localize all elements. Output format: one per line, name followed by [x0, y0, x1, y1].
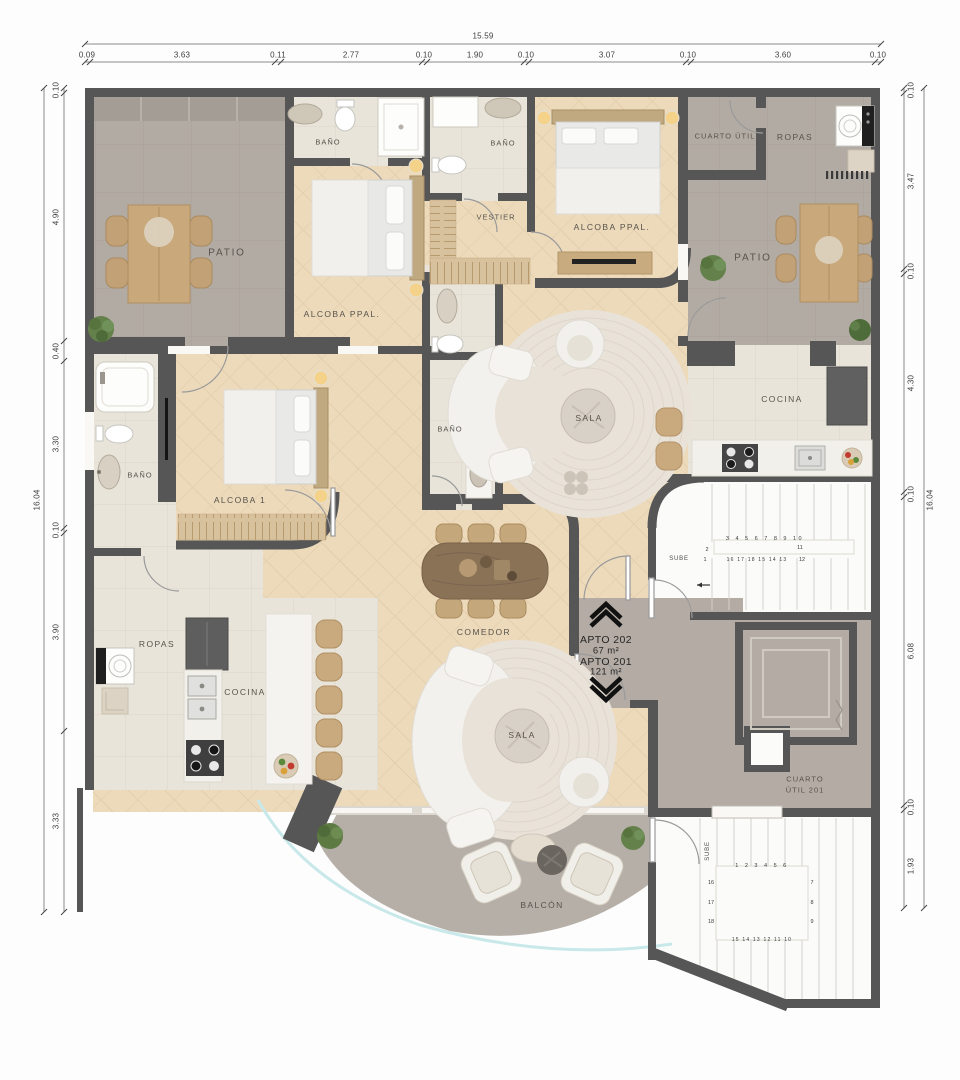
tv-console: [558, 252, 652, 274]
dim-left-seg-2: 0.40: [52, 343, 61, 359]
plant-icon: [849, 319, 871, 341]
stair1-right-bottom: 12: [799, 557, 805, 563]
toilet-icon: [105, 425, 133, 443]
hall-closet: [178, 514, 326, 540]
room-label-sala-center: SALA: [575, 413, 602, 423]
stair2-top-row: 1 2 3 4 5 6: [735, 863, 789, 869]
chair-icon: [656, 408, 682, 436]
stair2-bottom-row: 15 14 13 12 11 10: [732, 937, 792, 943]
dim-left-total: 16.04: [33, 489, 42, 510]
dim-top-seg-5: 1.90: [467, 51, 483, 60]
dim-top-seg-3: 2.77: [343, 51, 359, 60]
stool-icon: [316, 719, 342, 747]
stool-icon: [316, 686, 342, 714]
dim-left-seg-6: 3.33: [52, 813, 61, 829]
stool-icon: [316, 620, 342, 648]
apto-201-area: 121 m²: [590, 667, 622, 678]
dim-right-seg-3: 4.30: [907, 375, 916, 391]
stair1-sube-label: SUBE: [669, 556, 689, 562]
room-label-vestier: VESTIER: [476, 213, 515, 222]
bed-icon: [224, 371, 328, 503]
dim-top-seg-9: 3.60: [775, 51, 791, 60]
plant-icon: [88, 316, 114, 342]
room-label-bano-top-left: BAÑO: [315, 138, 340, 147]
room-label-alcoba-1: ALCOBA 1: [214, 495, 266, 505]
tv-icon: [572, 259, 636, 264]
stair1-right-top: 11: [797, 545, 803, 551]
fridge-icon: [827, 367, 867, 425]
chair-icon: [656, 442, 682, 470]
stair2-left-17: 17: [708, 900, 714, 906]
table-decor: [144, 217, 174, 247]
plant-icon: [700, 255, 726, 281]
dim-top-seg-6: 0.10: [518, 51, 534, 60]
stair2-left-16: 16: [708, 880, 714, 886]
room-label-alcoba-ppal-left: ALCOBA PPAL.: [304, 309, 381, 319]
room-label-ropas-top-right: ROPAS: [777, 132, 813, 142]
dim-top-seg-0: 0.09: [79, 51, 95, 60]
room-label-alcoba-ppal-top: ALCOBA PPAL.: [574, 222, 651, 232]
stair2-right-7: 7: [810, 880, 813, 886]
stove-icon: [722, 444, 758, 472]
bed-icon: [312, 159, 424, 297]
fruit-bowl-icon: [842, 448, 862, 468]
room-label-patio-top-left: PATIO: [208, 248, 246, 259]
apto-202-name: APTO 202: [580, 634, 632, 646]
chair-icon: [776, 254, 796, 282]
laundry-bl: [96, 648, 134, 714]
chair-icon: [436, 524, 462, 544]
fruit-bowl-icon: [274, 754, 298, 778]
chair-icon: [190, 216, 212, 246]
stair2-right-8: 8: [810, 900, 813, 906]
stair2-sube-label: SUBE: [705, 841, 711, 861]
table-decor: [815, 236, 843, 264]
bed-icon: [537, 110, 679, 214]
stool-icon: [316, 653, 342, 681]
toilet-icon: [437, 335, 463, 353]
dim-left-seg-5: 3.90: [52, 624, 61, 640]
dim-left-seg-0: 0.10: [52, 82, 61, 98]
dining-table-icon: [422, 543, 548, 599]
plant-icon: [317, 823, 343, 849]
toilet-icon: [438, 156, 466, 174]
room-label-cuarto-util: CUARTO ÚTIL: [695, 132, 756, 141]
lamp-icon: [409, 283, 423, 297]
dim-right-seg-7: 1.93: [907, 858, 916, 874]
room-label-cuarto-util-201-line1: CUARTO: [786, 775, 823, 784]
vent-hatch: [826, 171, 868, 179]
plant-icon: [621, 826, 645, 850]
lamp-icon: [314, 489, 328, 503]
room-label-comedor: COMEDOR: [457, 627, 511, 637]
dim-top-seg-4: 0.10: [416, 51, 432, 60]
room-label-bano-top-center: BAÑO: [490, 139, 515, 148]
stair1-left-bottom: 1: [703, 557, 706, 563]
dim-right-seg-1: 3.47: [907, 173, 916, 189]
dim-right-seg-4: 0.10: [907, 486, 916, 502]
dim-top-total: 15.59: [472, 32, 493, 41]
stool-icon: [316, 752, 342, 780]
room-label-balcon: BALCÓN: [520, 900, 563, 910]
stair2-right-9: 9: [810, 919, 813, 925]
dim-top-seg-10: 0.10: [870, 51, 886, 60]
chair-icon: [776, 216, 796, 244]
room-label-cocina-bottom-left: COCINA: [224, 687, 265, 697]
chair-icon: [106, 258, 128, 288]
dim-top-seg-1: 3.63: [174, 51, 190, 60]
dim-right-seg-5: 6.08: [907, 643, 916, 659]
lamp-icon: [537, 111, 551, 125]
room-label-bano-center: BAÑO: [437, 425, 462, 434]
stair1-bottom-row: 16 17 18 15 14 13: [727, 557, 788, 563]
stove-icon: [186, 740, 224, 776]
chair-icon: [436, 598, 462, 618]
dim-top-seg-2: 0.11: [270, 51, 286, 60]
sink-icon: [288, 104, 322, 124]
floor-plan-page: PATIO BAÑO ALCOBA PPAL. BAÑO VESTIER ALC…: [0, 0, 960, 1080]
room-label-cocina-right: COCINA: [761, 394, 802, 404]
chair-icon: [106, 216, 128, 246]
room-label-cuarto-util-201-line2: ÚTIL 201: [786, 786, 825, 795]
toilet-icon: [335, 107, 355, 131]
chair-icon: [500, 598, 526, 618]
lamp-icon: [665, 111, 679, 125]
dim-left-seg-3: 3.30: [52, 436, 61, 452]
chair-icon: [468, 598, 494, 618]
dim-top-seg-7: 3.07: [599, 51, 615, 60]
room-label-bano-mid-left: BAÑO: [127, 471, 152, 480]
utility-hall-floor: [648, 620, 872, 816]
stair2-left-18: 18: [708, 919, 714, 925]
dim-right-seg-2: 0.10: [907, 263, 916, 279]
room-label-sala-bottom: SALA: [508, 730, 535, 740]
dim-left-seg-4: 0.10: [52, 522, 61, 538]
floor-plan-drawing: [0, 0, 960, 1080]
lamp-icon: [409, 159, 423, 173]
sink-icon: [437, 289, 457, 323]
shower-icon: [433, 97, 478, 127]
vestier-closet: [430, 258, 530, 284]
room-label-ropas-bottom-left: ROPAS: [139, 639, 175, 649]
sink-icon: [98, 455, 120, 489]
chair-icon: [468, 524, 494, 544]
dim-left-seg-1: 4.90: [52, 209, 61, 225]
lamp-icon: [314, 371, 328, 385]
chair-icon: [500, 524, 526, 544]
dim-right-seg-0: 0.10: [907, 82, 916, 98]
sink-icon: [485, 98, 521, 118]
room-label-patio-right: PATIO: [734, 253, 772, 264]
dim-right-seg-6: 0.10: [907, 799, 916, 815]
dim-top-seg-8: 0.10: [680, 51, 696, 60]
stair1-left-top: 2: [705, 547, 708, 553]
dim-right-total: 16.04: [926, 489, 935, 510]
stair1-top-row: 3 4 5 6 7 8 9 10: [726, 536, 804, 542]
chair-icon: [190, 258, 212, 288]
